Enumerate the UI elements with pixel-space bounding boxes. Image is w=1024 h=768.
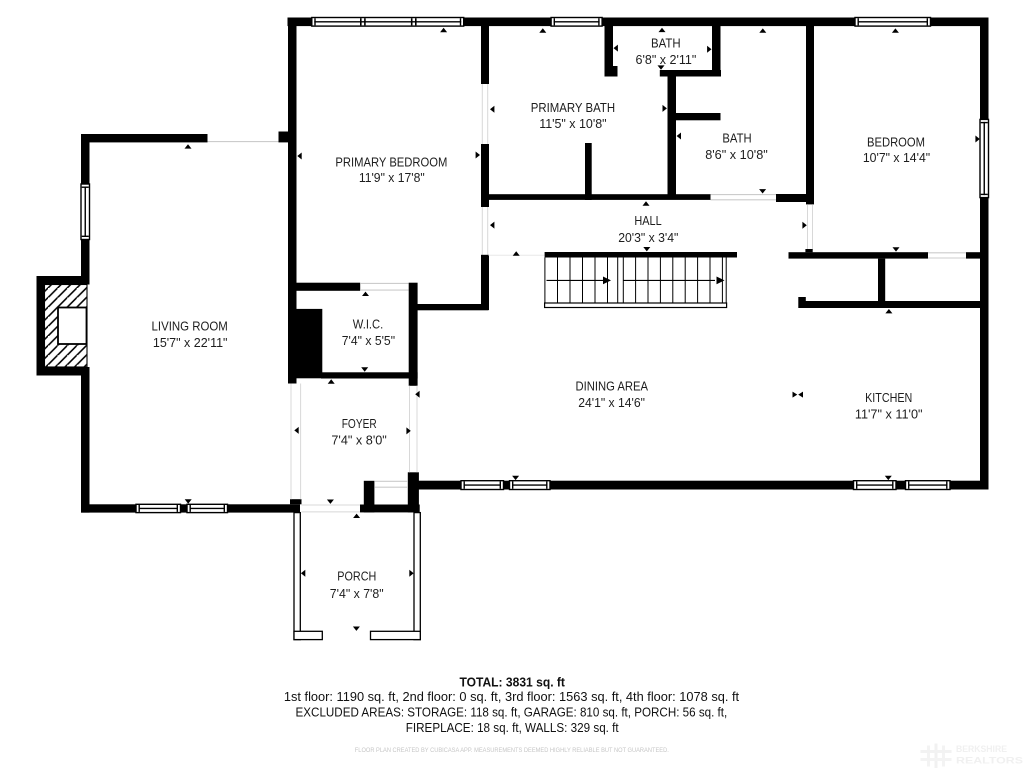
svg-text:15'7" x 22'11": 15'7" x 22'11" [153,335,228,350]
svg-text:TOTAL: 3831 sq. ft: TOTAL: 3831 sq. ft [459,674,565,689]
svg-text:1st floor: 1190 sq. ft, 2nd fl: 1st floor: 1190 sq. ft, 2nd floor: 0 sq.… [284,689,739,704]
svg-text:8'6" x 10'8": 8'6" x 10'8" [705,147,768,162]
svg-text:HALL: HALL [634,213,661,228]
svg-text:FIREPLACE: 18 sq. ft, WALLS: 3: FIREPLACE: 18 sq. ft, WALLS: 329 sq. ft [406,720,619,735]
svg-text:10'7" x 14'4": 10'7" x 14'4" [863,150,931,165]
svg-text:REALTORS: REALTORS [956,756,1023,767]
svg-text:PRIMARY BEDROOM: PRIMARY BEDROOM [335,154,447,169]
svg-text:BERKSHIRE: BERKSHIRE [956,744,1007,754]
svg-text:PORCH: PORCH [337,569,376,584]
svg-text:BATH: BATH [651,36,681,51]
svg-text:BATH: BATH [722,130,751,145]
svg-text:11'7" x 11'0": 11'7" x 11'0" [855,407,923,422]
svg-text:KITCHEN: KITCHEN [865,390,912,405]
svg-text:W.I.C.: W.I.C. [353,316,384,331]
svg-text:11'5" x 10'8": 11'5" x 10'8" [539,116,607,131]
svg-text:7'4" x 8'0": 7'4" x 8'0" [331,432,387,447]
svg-text:FOYER: FOYER [342,416,377,431]
svg-text:FLOOR PLAN CREATED BY CUBICASA: FLOOR PLAN CREATED BY CUBICASA APP. MEAS… [355,747,669,754]
svg-text:PRIMARY BATH: PRIMARY BATH [531,100,615,115]
svg-text:24'1" x 14'6": 24'1" x 14'6" [578,395,645,410]
svg-text:BEDROOM: BEDROOM [867,134,925,149]
svg-text:7'4" x 5'5": 7'4" x 5'5" [342,333,396,348]
svg-text:6'8" x 2'11": 6'8" x 2'11" [636,52,697,67]
svg-text:LIVING ROOM: LIVING ROOM [152,319,228,334]
svg-text:7'4" x 7'8": 7'4" x 7'8" [330,586,384,601]
svg-text:11'9" x 17'8": 11'9" x 17'8" [359,170,425,185]
svg-text:EXCLUDED AREAS: STORAGE: 118 s: EXCLUDED AREAS: STORAGE: 118 sq. ft, GAR… [296,705,728,720]
svg-text:20'3" x 3'4": 20'3" x 3'4" [618,230,679,245]
svg-text:DINING AREA: DINING AREA [576,378,649,393]
